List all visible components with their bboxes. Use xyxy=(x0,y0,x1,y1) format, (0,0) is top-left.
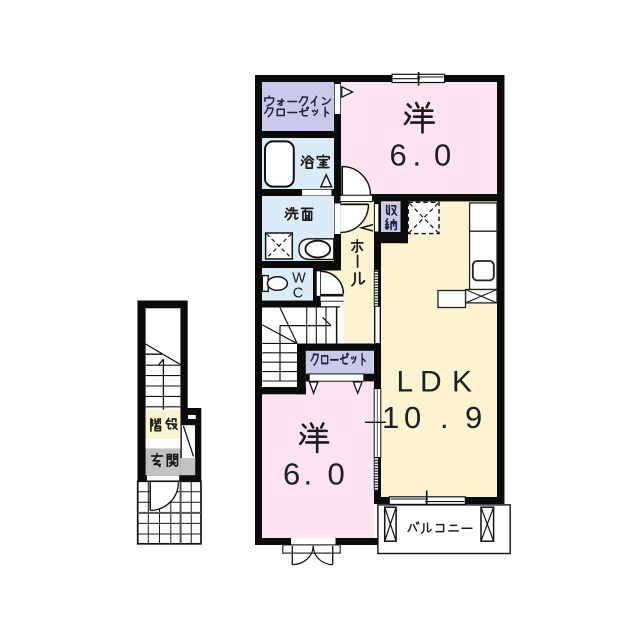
svg-text:6: 6 xyxy=(283,457,300,492)
svg-text:.: . xyxy=(413,138,422,173)
svg-text:0: 0 xyxy=(434,138,451,173)
svg-text:1: 1 xyxy=(382,400,399,435)
svg-text:L: L xyxy=(397,366,414,399)
svg-text:0: 0 xyxy=(328,457,345,492)
svg-text:.: . xyxy=(304,457,313,492)
svg-text:9: 9 xyxy=(465,400,482,435)
svg-text:K: K xyxy=(452,366,472,399)
svg-text:D: D xyxy=(420,366,442,399)
svg-text:W: W xyxy=(292,271,306,287)
svg-text:6: 6 xyxy=(390,138,407,173)
svg-text:C: C xyxy=(293,286,303,302)
svg-text:0: 0 xyxy=(404,400,421,435)
svg-text:.: . xyxy=(440,400,449,435)
